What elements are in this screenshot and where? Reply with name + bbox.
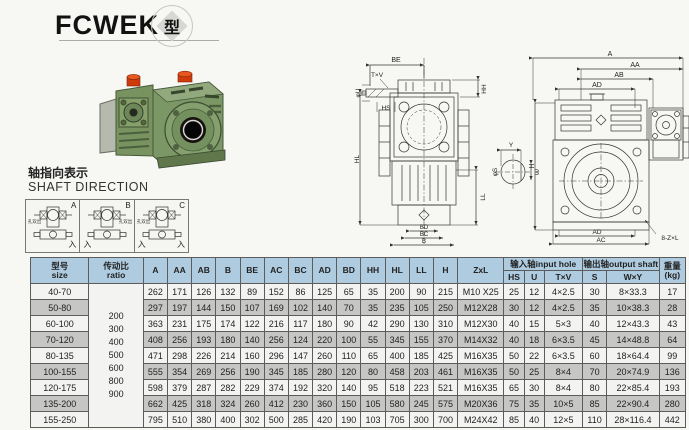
table-cell: 35 <box>361 300 385 316</box>
cell-size: 60-100 <box>31 316 89 332</box>
table-cell: 86 <box>288 284 312 300</box>
input-mark-left: 入 <box>138 239 146 250</box>
table-cell: 216 <box>264 316 288 332</box>
table-cell: 185 <box>409 348 433 364</box>
table-cell: 518 <box>385 380 409 396</box>
table-cell: 122 <box>240 316 264 332</box>
table-cell: 580 <box>385 396 409 412</box>
cell-weight: 99 <box>659 348 685 364</box>
cell-size: 155-250 <box>31 412 89 428</box>
table-cell: 12 <box>524 300 544 316</box>
catalog-page: { "page": { "title": "FCWEK", "title_bad… <box>0 0 689 430</box>
cell-weight: 64 <box>659 332 685 348</box>
dim-label-BE: BE <box>391 57 401 64</box>
cell-weight: 17 <box>659 284 685 300</box>
dim-label-H: H <box>529 163 536 168</box>
table-cell: 140 <box>240 332 264 348</box>
table-cell: 180 <box>216 332 240 348</box>
table-cell: 5×3 <box>544 316 582 332</box>
table-cell: 260 <box>313 348 337 364</box>
table-cell: 256 <box>264 332 288 348</box>
shaft-direction-table: A 孔双出 入 B 孔双出 <box>25 199 189 253</box>
table-cell: 80 <box>583 380 607 396</box>
table-cell: 555 <box>143 364 167 380</box>
table-cell: 35 <box>583 300 607 316</box>
cell-ZxL: M16X35 <box>458 380 504 396</box>
col-HS: HS <box>504 271 524 284</box>
table-cell: 203 <box>409 364 433 380</box>
table-cell: 8×4 <box>544 364 582 380</box>
table-cell: 30 <box>583 284 607 300</box>
group-input-hole: 输入轴input hole <box>504 258 583 271</box>
col-BE: BE <box>240 258 264 284</box>
cell-size: 135-200 <box>31 396 89 412</box>
table-cell: 150 <box>337 396 361 412</box>
table-cell: 103 <box>361 412 385 428</box>
table-cell: 175 <box>192 316 216 332</box>
table-cell: 50 <box>504 364 524 380</box>
table-cell: 12×43.3 <box>607 316 659 332</box>
table-cell: 171 <box>168 284 192 300</box>
table-cell: 269 <box>192 364 216 380</box>
table-cell: 245 <box>409 396 433 412</box>
table-cell: 285 <box>288 412 312 428</box>
table-cell: 28×116.4 <box>607 412 659 428</box>
table-cell: 280 <box>313 364 337 380</box>
cell-weight: 280 <box>659 396 685 412</box>
table-cell: 298 <box>168 348 192 364</box>
table-cell: 262 <box>143 284 167 300</box>
table-cell: 229 <box>240 380 264 396</box>
col-ratio: 传动比ratio <box>89 258 143 284</box>
table-cell: 400 <box>385 348 409 364</box>
dim-label-HH: HH <box>481 84 488 94</box>
table-cell: 22 <box>524 348 544 364</box>
table-cell: 8×33.3 <box>607 284 659 300</box>
table-cell: 185 <box>288 364 312 380</box>
col-LL: LL <box>409 258 433 284</box>
table-cell: 214 <box>216 348 240 364</box>
cell-weight: 28 <box>659 300 685 316</box>
shaft-direction-cell-b: B 孔双出 入 <box>80 200 134 252</box>
cell-ZxL: M14X32 <box>458 332 504 348</box>
dim-label-8ZxL: 8-Z×L <box>661 235 679 242</box>
col-AB: AB <box>192 258 216 284</box>
table-cell: 40 <box>583 316 607 332</box>
table-cell: 193 <box>192 332 216 348</box>
table-cell: 155 <box>409 332 433 348</box>
group-output-shaft: 输出轴output shaft <box>583 258 660 271</box>
col-HL: HL <box>385 258 409 284</box>
table-cell: 310 <box>433 316 457 332</box>
input-mark-left: 入 <box>83 239 91 250</box>
col-AC: AC <box>264 258 288 284</box>
table-cell: 12 <box>524 284 544 300</box>
table-cell: 471 <box>143 348 167 364</box>
dim-label-AD-bottom: AD <box>592 229 601 236</box>
spec-table: 型号size传动比ratioAAAABBBEACBCADBDHHHLLLHZxL… <box>30 257 686 428</box>
table-cell: 370 <box>433 332 457 348</box>
dim-label-LL: LL <box>480 193 487 201</box>
col-HH: HH <box>361 258 385 284</box>
cell-size: 100-155 <box>31 364 89 380</box>
table-cell: 70 <box>583 364 607 380</box>
type-badge: 型 <box>151 5 193 47</box>
table-cell: 120 <box>337 364 361 380</box>
spec-table-head: 型号size传动比ratioAAAABBBEACBCADBDHHHLLLHZxL… <box>31 258 686 284</box>
table-cell: 105 <box>409 300 433 316</box>
dim-label-AC: AC <box>596 237 605 244</box>
table-cell: 575 <box>433 396 457 412</box>
table-cell: 250 <box>433 300 457 316</box>
table-cell: 30 <box>524 380 544 396</box>
table-cell: 160 <box>240 348 264 364</box>
table-cell: 374 <box>264 380 288 396</box>
table-cell: 22×85.4 <box>607 380 659 396</box>
table-cell: 105 <box>361 396 385 412</box>
table-cell: 380 <box>192 412 216 428</box>
table-cell: 70 <box>337 300 361 316</box>
table-cell: 107 <box>240 300 264 316</box>
cell-ZxL: M12X30 <box>458 316 504 332</box>
dim-label-BD: BD <box>420 225 429 231</box>
dim-label-HS: HS <box>381 105 391 112</box>
table-cell: 230 <box>288 396 312 412</box>
table-cell: 190 <box>240 364 264 380</box>
table-cell: 20×74.9 <box>607 364 659 380</box>
cell-size: 70-120 <box>31 332 89 348</box>
table-cell: 125 <box>313 284 337 300</box>
table-cell: 190 <box>337 412 361 428</box>
cell-ZxL: M20X36 <box>458 396 504 412</box>
table-cell: 282 <box>216 380 240 396</box>
table-cell: 215 <box>433 284 457 300</box>
shaft-direction-title-cn: 轴指向表示 <box>28 166 148 180</box>
table-cell: 40 <box>504 332 524 348</box>
table-cell: 461 <box>433 364 457 380</box>
table-cell: 256 <box>216 364 240 380</box>
table-cell: 60 <box>583 348 607 364</box>
table-cell: 192 <box>288 380 312 396</box>
table-cell: 324 <box>216 396 240 412</box>
table-cell: 85 <box>583 396 607 412</box>
table-cell: 425 <box>433 348 457 364</box>
table-cell: 150 <box>216 300 240 316</box>
col-weight: 重量(kg) <box>659 258 685 284</box>
table-cell: 55 <box>361 332 385 348</box>
table-cell: 4×2.5 <box>544 284 582 300</box>
cell-ratio: 200300400500600800900 <box>89 284 143 428</box>
col-BD: BD <box>337 258 361 284</box>
cell-size: 80-135 <box>31 348 89 364</box>
table-cell: 400 <box>216 412 240 428</box>
table-cell: 90 <box>409 284 433 300</box>
dim-label-Y: Y <box>509 142 514 149</box>
col-BC: BC <box>288 258 312 284</box>
col-W×Y: W×Y <box>607 271 659 284</box>
table-cell: 521 <box>433 380 457 396</box>
table-cell: 290 <box>385 316 409 332</box>
table-cell: 45 <box>583 332 607 348</box>
table-cell: 18 <box>524 332 544 348</box>
cell-weight: 193 <box>659 380 685 396</box>
table-cell: 10×38.3 <box>607 300 659 316</box>
table-cell: 260 <box>240 396 264 412</box>
spec-table-body: 40-7020030040050060080090026217112613289… <box>31 284 686 428</box>
page-title: FCWEK 型 <box>55 10 245 54</box>
mini-gearbox-sketch <box>30 204 76 244</box>
table-cell: 425 <box>168 396 192 412</box>
col-U: U <box>524 271 544 284</box>
table-cell: 152 <box>264 284 288 300</box>
col-size: 型号size <box>31 258 89 284</box>
table-cell: 510 <box>168 412 192 428</box>
table-cell: 4×2.5 <box>544 300 582 316</box>
table-cell: 360 <box>313 396 337 412</box>
table-cell: 296 <box>264 348 288 364</box>
table-cell: 10×5 <box>544 396 582 412</box>
table-cell: 50 <box>504 348 524 364</box>
table-cell: 40 <box>524 412 544 428</box>
table-cell: 65 <box>337 284 361 300</box>
shaft-direction-title: 轴指向表示 SHAFT DIRECTION <box>28 166 148 194</box>
product-photo <box>97 56 242 172</box>
table-cell: 220 <box>313 332 337 348</box>
cell-weight: 136 <box>659 364 685 380</box>
table-cell: 25 <box>504 284 524 300</box>
table-cell: 302 <box>240 412 264 428</box>
table-cell: 35 <box>524 396 544 412</box>
table-cell: 500 <box>264 412 288 428</box>
table-cell: 287 <box>192 380 216 396</box>
dim-label-phiU: φU <box>355 88 362 97</box>
table-cell: 65 <box>361 348 385 364</box>
col-S: S <box>583 271 607 284</box>
table-cell: 30 <box>504 300 524 316</box>
mini-gearbox-sketch <box>84 204 130 244</box>
table-cell: 598 <box>143 380 167 396</box>
table-cell: 256 <box>168 332 192 348</box>
table-cell: 12×5 <box>544 412 582 428</box>
output-bore <box>185 122 201 138</box>
table-cell: 102 <box>288 300 312 316</box>
cell-ZxL: M16X35 <box>458 348 504 364</box>
table-cell: 458 <box>385 364 409 380</box>
table-cell: 180 <box>313 316 337 332</box>
table-cell: 169 <box>264 300 288 316</box>
table-cell: 110 <box>337 348 361 364</box>
table-cell: 705 <box>385 412 409 428</box>
table-cell: 110 <box>583 412 607 428</box>
table-cell: 662 <box>143 396 167 412</box>
table-cell: 35 <box>361 284 385 300</box>
table-row: 40-7020030040050060080090026217112613289… <box>31 284 686 300</box>
table-cell: 223 <box>409 380 433 396</box>
col-H: H <box>433 258 457 284</box>
cell-size: 120-175 <box>31 380 89 396</box>
table-cell: 14×48.8 <box>607 332 659 348</box>
type-badge-label: 型 <box>152 6 192 46</box>
dim-label-BC: BC <box>420 232 429 238</box>
col-AA: AA <box>168 258 192 284</box>
table-cell: 6×3.5 <box>544 348 582 364</box>
dim-label-TxV: T×V <box>371 72 384 79</box>
table-cell: 363 <box>143 316 167 332</box>
model-series-title: FCWEK <box>55 10 159 41</box>
shaft-direction-cell-a: A 孔双出 入 <box>26 200 80 252</box>
table-cell: 100 <box>337 332 361 348</box>
table-cell: 197 <box>168 300 192 316</box>
table-cell: 420 <box>313 412 337 428</box>
dim-label-HL: HL <box>354 154 361 163</box>
dim-label-AD-top: AD <box>592 82 602 89</box>
table-cell: 8×4 <box>544 380 582 396</box>
cell-ZxL: M12X28 <box>458 300 504 316</box>
table-cell: 25 <box>524 364 544 380</box>
table-cell: 174 <box>216 316 240 332</box>
table-cell: 147 <box>288 348 312 364</box>
table-cell: 320 <box>313 380 337 396</box>
table-cell: 226 <box>192 348 216 364</box>
table-cell: 6×3.5 <box>544 332 582 348</box>
col-ZxL: ZxL <box>458 258 504 284</box>
table-cell: 231 <box>168 316 192 332</box>
table-cell: 75 <box>504 396 524 412</box>
cell-size: 50-80 <box>31 300 89 316</box>
col-AD: AD <box>313 258 337 284</box>
table-cell: 95 <box>361 380 385 396</box>
side-view-drawing: A AA AB AD H AD AC 8-Z×L <box>525 48 689 248</box>
table-cell: 140 <box>337 380 361 396</box>
table-cell: 140 <box>313 300 337 316</box>
cell-size: 40-70 <box>31 284 89 300</box>
table-cell: 42 <box>361 316 385 332</box>
table-cell: 200 <box>385 284 409 300</box>
shaft-direction-cell-c: C 孔双出 入 入 <box>135 200 188 252</box>
table-cell: 15 <box>524 316 544 332</box>
table-cell: 412 <box>264 396 288 412</box>
table-cell: 795 <box>143 412 167 428</box>
table-cell: 117 <box>288 316 312 332</box>
table-cell: 130 <box>409 316 433 332</box>
dim-label-B: B <box>422 239 426 245</box>
table-cell: 300 <box>409 412 433 428</box>
table-cell: 318 <box>192 396 216 412</box>
dim-label-phiS: φS <box>492 167 499 176</box>
table-cell: 126 <box>192 284 216 300</box>
table-cell: 354 <box>168 364 192 380</box>
table-cell: 345 <box>385 332 409 348</box>
mini-gearbox-sketch <box>139 204 185 244</box>
table-cell: 89 <box>240 284 264 300</box>
table-cell: 22×90.4 <box>607 396 659 412</box>
table-cell: 90 <box>337 316 361 332</box>
input-mark-right: 入 <box>68 239 76 250</box>
table-cell: 700 <box>433 412 457 428</box>
table-cell: 40 <box>504 316 524 332</box>
dim-label-AB: AB <box>614 72 624 79</box>
table-cell: 345 <box>264 364 288 380</box>
table-cell: 408 <box>143 332 167 348</box>
col-A: A <box>143 258 167 284</box>
cell-ZxL: M10 X25 <box>458 284 504 300</box>
cell-ZxL: M24X42 <box>458 412 504 428</box>
cell-ZxL: M16X35 <box>458 364 504 380</box>
table-cell: 80 <box>361 364 385 380</box>
dim-label-AA: AA <box>630 62 640 69</box>
table-cell: 132 <box>216 284 240 300</box>
input-mark-right: 入 <box>177 239 185 250</box>
col-B: B <box>216 258 240 284</box>
table-cell: 144 <box>192 300 216 316</box>
dim-label-A: A <box>608 51 613 58</box>
cell-weight: 442 <box>659 412 685 428</box>
col-T×V: T×V <box>544 271 582 284</box>
table-cell: 124 <box>288 332 312 348</box>
table-cell: 379 <box>168 380 192 396</box>
shaft-direction-title-en: SHAFT DIRECTION <box>28 180 148 194</box>
table-cell: 65 <box>504 380 524 396</box>
table-cell: 85 <box>504 412 524 428</box>
front-view-drawing: BE T×V φU HS HH HL LL BD BC B <box>350 52 490 248</box>
cell-weight: 43 <box>659 316 685 332</box>
table-cell: 235 <box>385 300 409 316</box>
table-cell: 18×64.4 <box>607 348 659 364</box>
table-cell: 297 <box>143 300 167 316</box>
